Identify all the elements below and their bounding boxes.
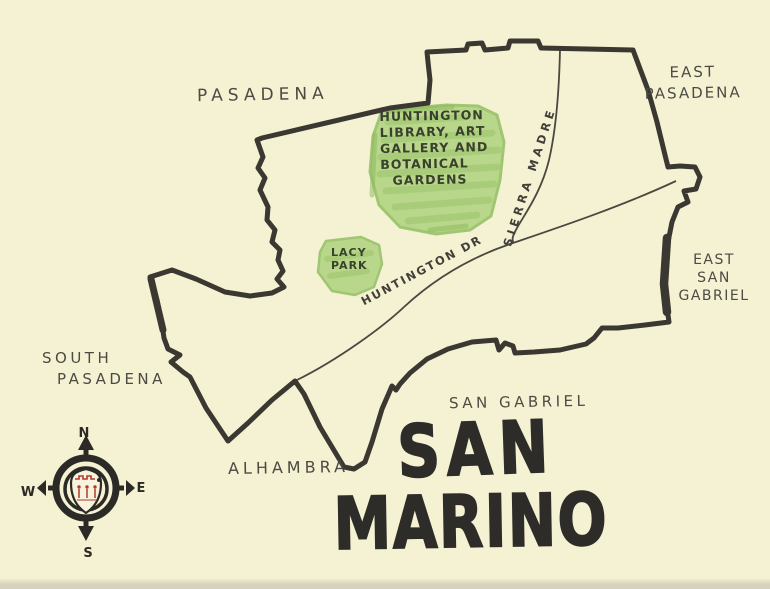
label-alhambra: ALHAMBRA — [228, 457, 349, 478]
label-east-pasadena: EAST PASADENA — [643, 61, 744, 105]
label-pasadena: PASADENA — [197, 84, 329, 106]
label-line: BOTANICAL — [380, 155, 489, 173]
label-line: LIBRARY, ART — [380, 123, 489, 141]
label-line: PARK — [331, 259, 368, 272]
label-line: LACY — [331, 246, 368, 259]
west-arrowhead-icon — [37, 480, 46, 496]
label-line: PASADENA — [643, 82, 743, 105]
label-line: SAN — [670, 269, 758, 287]
boundary-overstroke-west — [151, 279, 163, 330]
label-east-san-gabriel: EAST SAN GABRIEL — [670, 251, 758, 305]
label-line: GALLERY AND — [380, 139, 489, 157]
label-line: EAST — [670, 251, 758, 269]
label-line: GARDENS — [392, 171, 489, 189]
map-canvas: N E W S PASADENA EAST PASADENA EAST SAN … — [0, 0, 770, 589]
label-huntington-gardens: HUNTINGTON LIBRARY, ART GALLERY AND BOTA… — [379, 107, 489, 189]
compass-label-east: E — [137, 481, 146, 496]
boundary-overstroke-east — [664, 238, 667, 312]
label-line: GABRIEL — [670, 287, 758, 305]
label-line: PASADENA — [57, 369, 166, 390]
crest-dot-icon — [97, 478, 101, 482]
label-line: HUNTINGTON — [379, 107, 488, 125]
south-arrowhead-icon — [78, 526, 94, 541]
compass-label-west: W — [21, 485, 35, 500]
label-lacy-park: LACY PARK — [331, 246, 368, 272]
label-line: SOUTH — [42, 348, 166, 369]
compass-label-south: S — [83, 546, 92, 561]
east-arrowhead-icon — [126, 480, 135, 496]
compass-rose: N E W S — [21, 426, 146, 561]
map-title-line2: MARINO — [333, 477, 609, 566]
compass-label-north: N — [79, 426, 90, 441]
label-line: EAST — [643, 61, 743, 84]
label-south-pasadena: SOUTH PASADENA — [42, 348, 166, 390]
scan-edge-shadow — [0, 578, 770, 589]
